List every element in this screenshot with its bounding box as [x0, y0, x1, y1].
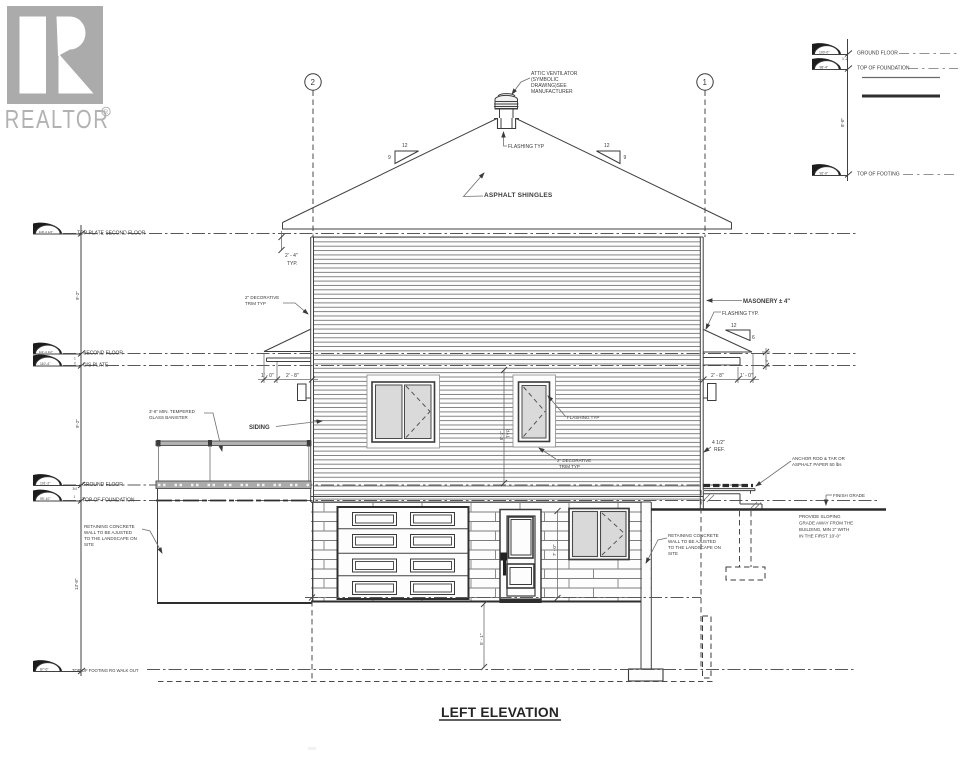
svg-text:R: R	[104, 109, 109, 116]
svg-text:8'-1": 8'-1"	[499, 431, 504, 440]
svg-text:RETAINING CONCRETE: RETAINING CONCRETE	[84, 524, 135, 529]
svg-text:5' - 1": 5' - 1"	[479, 633, 484, 645]
svg-text:12: 12	[604, 143, 610, 149]
svg-text:6: 6	[752, 335, 755, 341]
svg-text:TYP.: TYP.	[287, 261, 297, 267]
svg-text:BUILDING, MIN 2" WITH: BUILDING, MIN 2" WITH	[799, 527, 849, 532]
svg-text:0: 0	[74, 362, 76, 366]
svg-text:ASPHALT SHINGLES: ASPHALT SHINGLES	[484, 192, 553, 199]
svg-text:TOP OF FOOTING: TOP OF FOOTING	[857, 172, 900, 178]
svg-text:GRADE AWAY FROM THE: GRADE AWAY FROM THE	[799, 521, 853, 526]
svg-text:FLASHING TYP.: FLASHING TYP.	[722, 311, 759, 317]
svg-text:2' - 4": 2' - 4"	[285, 253, 298, 259]
svg-text:2' - 8": 2' - 8"	[286, 373, 299, 379]
svg-text:FLASHING TYP: FLASHING TYP	[567, 415, 599, 420]
svg-text:FINISH GRADE: FINISH GRADE	[833, 493, 865, 498]
svg-text:TOP PLATE SECOND FLOOR: TOP PLATE SECOND FLOOR	[77, 231, 146, 237]
svg-text:4 1/2": 4 1/2"	[712, 440, 725, 446]
svg-text:2" DECORATIVE: 2" DECORATIVE	[245, 295, 279, 300]
svg-text:SITE: SITE	[84, 542, 94, 547]
svg-text:9'-2": 9'-2"	[75, 419, 80, 428]
svg-text:TRIM TYP: TRIM TYP	[245, 301, 266, 306]
svg-text:12: 12	[731, 323, 737, 329]
svg-text:1: 1	[74, 357, 76, 361]
svg-text:SECOND FLOOR: SECOND FLOOR	[83, 351, 123, 357]
svg-text:WALL TO BE AJUSTED: WALL TO BE AJUSTED	[668, 539, 717, 544]
svg-text:1' - 0": 1' - 0"	[261, 373, 274, 379]
svg-text:2' - 8": 2' - 8"	[711, 373, 724, 379]
svg-text:PROVIDE SLOPING: PROVIDE SLOPING	[799, 514, 841, 519]
svg-text:2" DECORATIVE: 2" DECORATIVE	[557, 458, 591, 463]
svg-text:GROUND FLOOR: GROUND FLOOR	[857, 51, 898, 57]
svg-text:MANUFACTURER: MANUFACTURER	[531, 89, 573, 95]
svg-text:REF.: REF.	[714, 447, 725, 453]
svg-text:9: 9	[624, 155, 627, 161]
svg-text:7' - 0": 7' - 0"	[552, 544, 557, 556]
svg-text:FLASHING TYP: FLASHING TYP	[508, 144, 545, 150]
svg-text:1: 1	[74, 495, 76, 499]
svg-text:TOP OF FOOTING RG WALK OUT: TOP OF FOOTING RG WALK OUT	[72, 668, 139, 673]
svg-text:WALL TO BE AJUSTED: WALL TO BE AJUSTED	[84, 530, 133, 535]
svg-text:U/S PLATE: U/S PLATE	[83, 363, 109, 369]
svg-text:9'-2": 9'-2"	[75, 291, 80, 300]
svg-text:1: 1	[703, 78, 708, 87]
svg-text:9: 9	[388, 155, 391, 161]
svg-text:SIDING: SIDING	[249, 425, 270, 431]
svg-text:TRIM TYP: TRIM TYP	[559, 464, 580, 469]
svg-text:REALTOR: REALTOR	[5, 105, 110, 134]
svg-text:TYP.: TYP.	[506, 429, 511, 438]
svg-text:TOP OF FOUNDATION: TOP OF FOUNDATION	[82, 498, 135, 504]
svg-text:2: 2	[311, 78, 316, 87]
svg-text:MASONERY ± 4": MASONERY ± 4"	[743, 299, 790, 305]
svg-text:12: 12	[402, 143, 408, 149]
svg-text:1'-2: 1'-2	[842, 57, 848, 61]
svg-text:TO THE LANDSCAPE ON: TO THE LANDSCAPE ON	[668, 545, 721, 550]
svg-text:TO THE LANDSCAPE ON: TO THE LANDSCAPE ON	[84, 536, 137, 541]
svg-text:8'-0": 8'-0"	[840, 118, 845, 127]
svg-text:13'-8": 13'-8"	[74, 578, 79, 590]
svg-text:IN THE FIRST 10'-0": IN THE FIRST 10'-0"	[799, 534, 841, 539]
svg-text:LEFT ELEVATION: LEFT ELEVATION	[441, 705, 559, 720]
svg-text:GROUND FLOOR: GROUND FLOOR	[82, 482, 123, 488]
svg-text:1' - 0": 1' - 0"	[740, 373, 753, 379]
svg-text:3/4: 3/4	[73, 487, 78, 491]
svg-text:ANCHOR ROD & TAR OR: ANCHOR ROD & TAR OR	[792, 456, 846, 461]
svg-text:RETAINING CONCRETE: RETAINING CONCRETE	[668, 533, 719, 538]
svg-text:GLASS BANISTER: GLASS BANISTER	[149, 415, 189, 420]
svg-text:ASPHALT PAPER 50 lbs: ASPHALT PAPER 50 lbs	[792, 462, 842, 467]
svg-text:SITE: SITE	[668, 551, 678, 556]
svg-text:3'-6" MIN. TEMPERED: 3'-6" MIN. TEMPERED	[149, 409, 196, 414]
svg-text:TOP OF FOUNDATION: TOP OF FOUNDATION	[857, 66, 910, 72]
